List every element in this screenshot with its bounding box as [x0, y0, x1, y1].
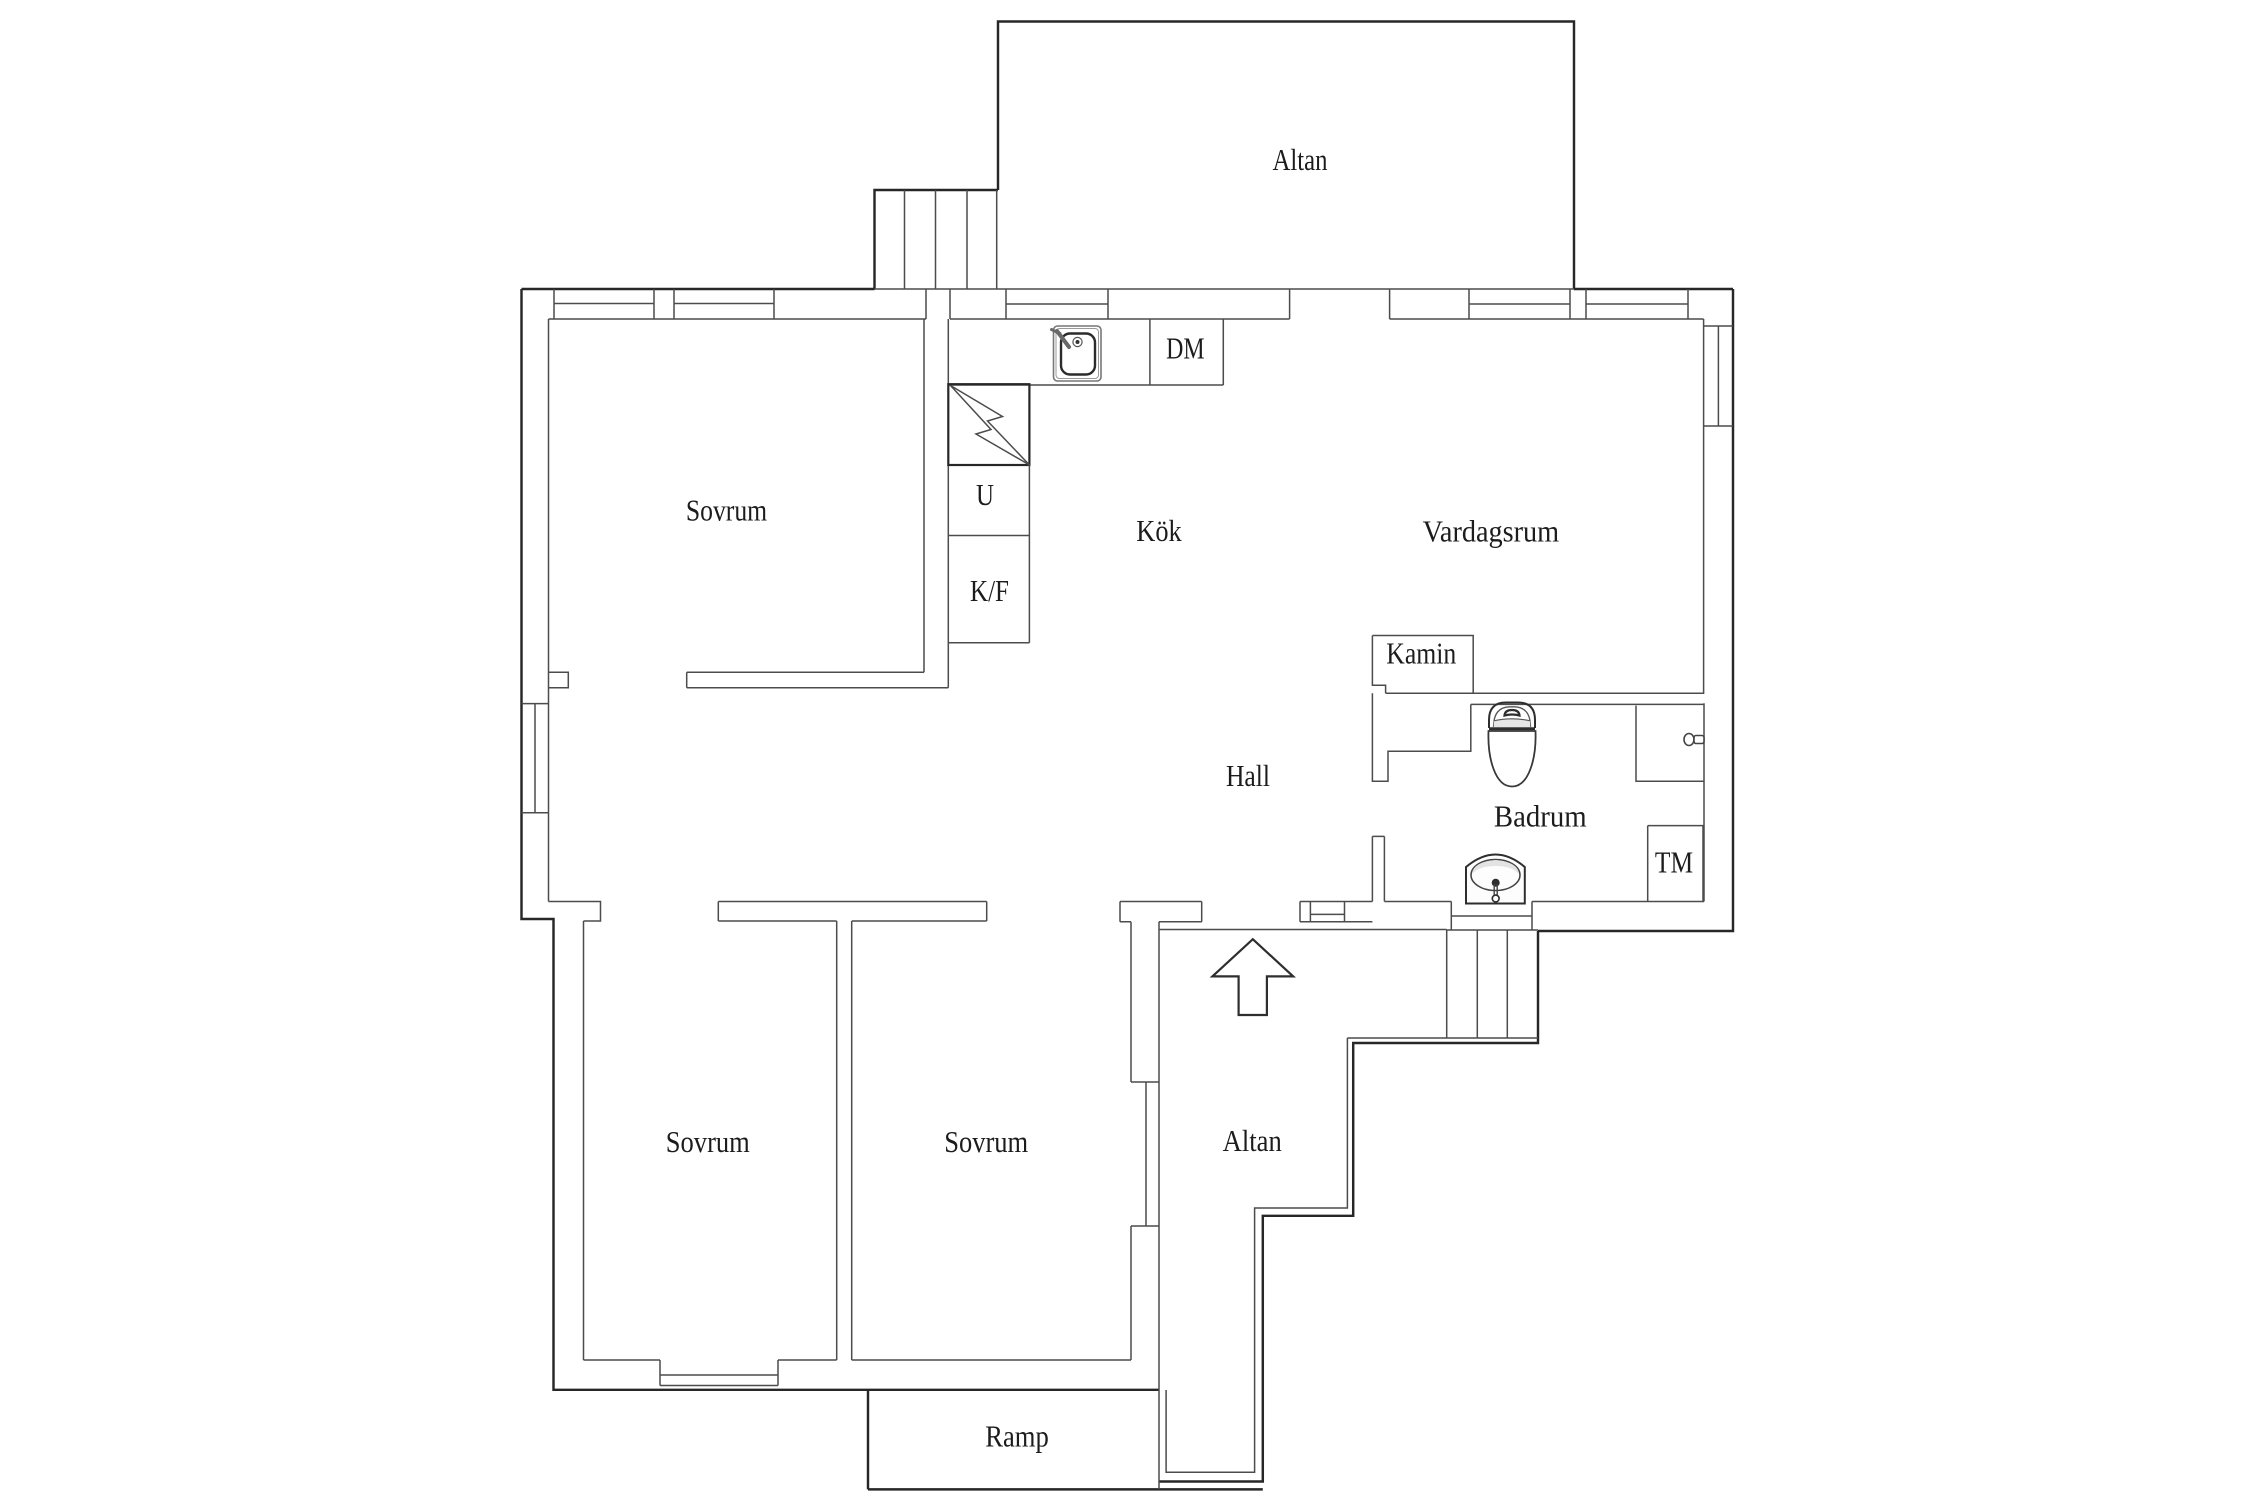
svg-text:Kamin: Kamin — [1386, 635, 1456, 670]
svg-text:Ramp: Ramp — [985, 1418, 1049, 1453]
svg-text:K/F: K/F — [970, 573, 1009, 608]
svg-text:Sovrum: Sovrum — [944, 1124, 1028, 1159]
svg-text:TM: TM — [1655, 845, 1693, 880]
svg-text:Vardagsrum: Vardagsrum — [1423, 514, 1560, 549]
svg-text:U: U — [976, 477, 994, 512]
svg-text:Kök: Kök — [1136, 513, 1182, 548]
svg-text:Altan: Altan — [1223, 1123, 1283, 1158]
svg-text:Hall: Hall — [1226, 758, 1270, 793]
svg-text:Sovrum: Sovrum — [666, 1124, 750, 1159]
svg-text:Badrum: Badrum — [1494, 798, 1587, 833]
svg-text:DM: DM — [1166, 331, 1205, 366]
svg-text:Altan: Altan — [1273, 142, 1328, 177]
svg-text:Sovrum: Sovrum — [686, 493, 767, 528]
